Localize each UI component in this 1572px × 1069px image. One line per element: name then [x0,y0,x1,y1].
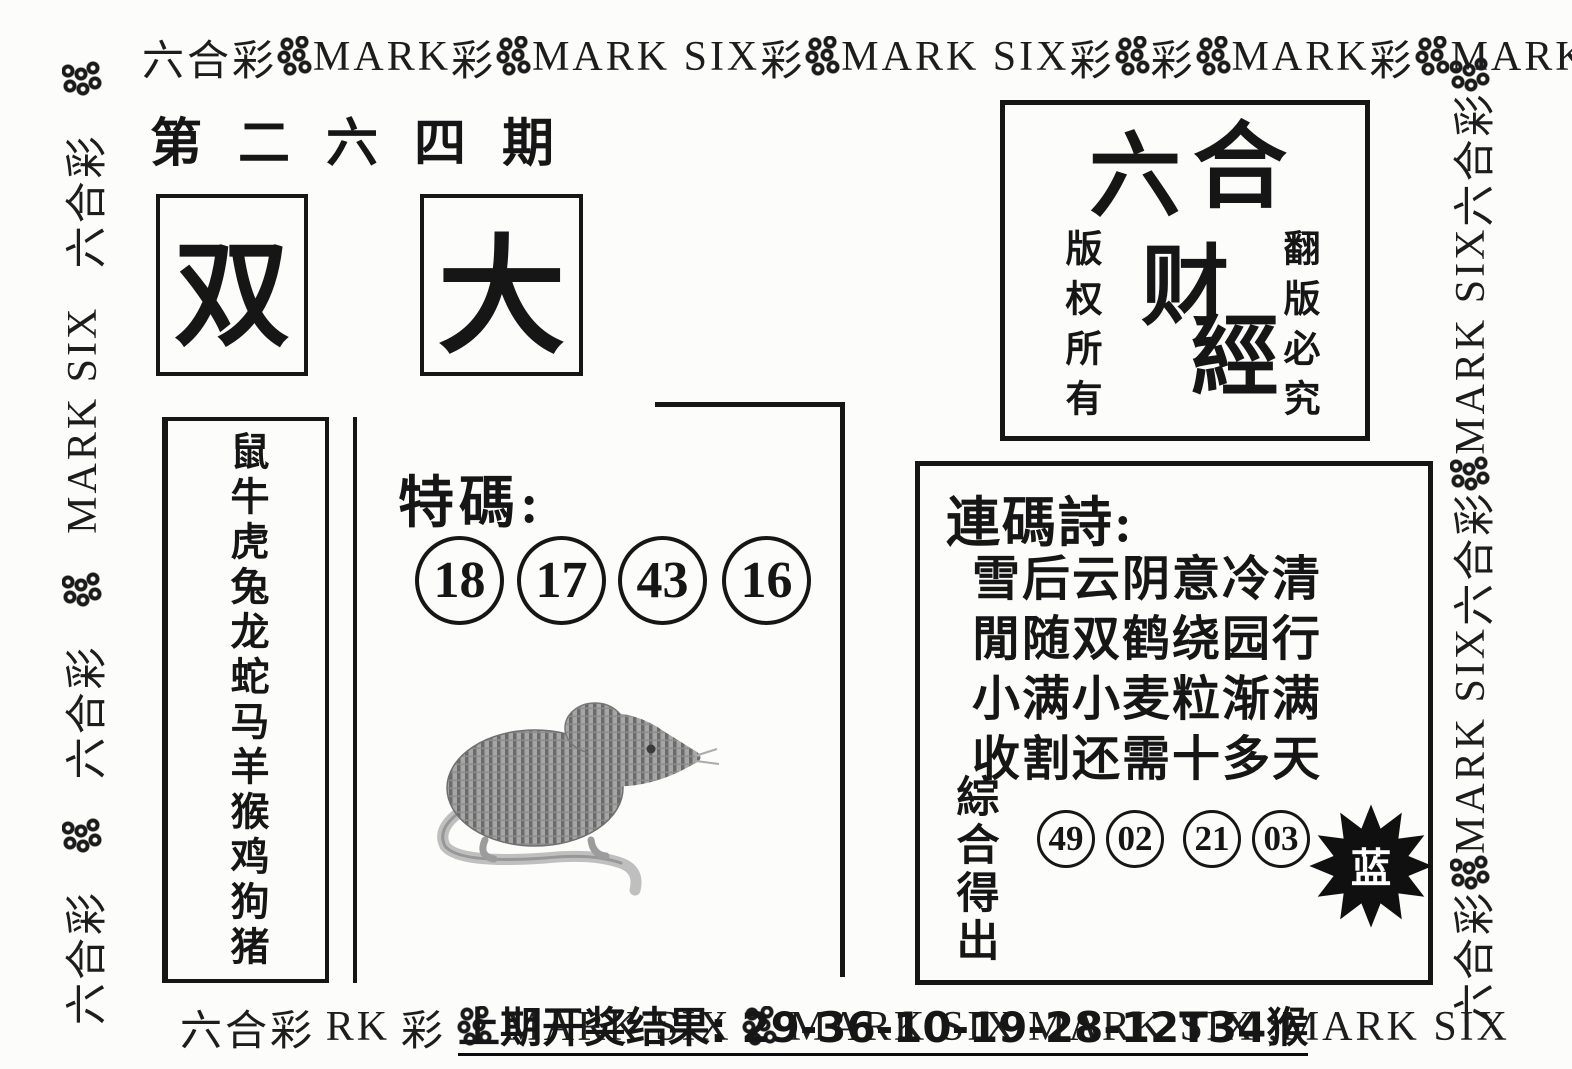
flower-cluster-icon [1450,56,1492,92]
border-text: 彩 [1370,27,1415,88]
issue-title: 第二六四期 [150,101,590,176]
masthead-char: 六 [1089,131,1181,223]
flower-cluster-icon [277,36,313,78]
summary-number: 21 [1195,819,1230,859]
border-text: 彩 [451,27,496,88]
border-text: 六合彩 [1441,491,1502,626]
masthead-char: 合 [1193,121,1287,215]
zodiac-animals: 鼠牛虎兔龙蛇马羊猴鸡狗猪 [227,431,266,979]
panel-border-right [840,402,845,977]
summary-number: 49 [1049,819,1084,859]
color-burst-badge: 蓝 [1305,800,1437,932]
special-number-circle: 16 [722,536,811,625]
masthead-char: 經 [1191,315,1279,403]
flower-cluster-icon [496,36,532,78]
border-text: 六合彩 [53,133,114,268]
border-text: 彩 [760,27,805,88]
border-text: MARK SIX [59,306,107,534]
poem-line: 小满小麦粒渐满 [972,670,1322,730]
border-text: RK [326,1003,390,1051]
top-border: 六合彩 MARK 彩 MARK SIX 彩 MARK SIX 彩 彩 MARK … [142,28,1510,86]
flower-cluster-icon [62,817,104,853]
lottery-tipsheet-page: 六合彩 MARK 彩 MARK SIX 彩 MARK SIX 彩 彩 MARK … [0,0,1572,1069]
summary-number: 03 [1264,819,1299,859]
badge-double-label: 双 [174,201,290,369]
border-text: MARK SIX [532,33,760,81]
summary-number: 02 [1118,819,1153,859]
summary-label: 綜合得出 [952,774,995,966]
color-burst-label: 蓝 [1351,846,1391,891]
border-text: MARK SIX [1447,227,1495,455]
special-code-label: 特碼: [398,458,544,539]
masthead-box: 六 合 财 經 版权所有 翻版必究 [1000,100,1370,441]
special-number-circle: 18 [415,536,504,625]
border-text: 六合彩 [53,890,114,1025]
flower-cluster-icon [1196,36,1232,78]
copyright-notice: 版权所有 [1061,229,1098,429]
badge-big: 大 [420,194,583,376]
last-draw-result: 上期开奖结果: 29-36-10-19-28-12T34猴 [458,1004,1308,1056]
border-text: 彩 [1151,27,1196,88]
summary-number-circle: 21 [1183,810,1241,868]
flower-cluster-icon [1115,36,1151,78]
no-reprint-notice: 翻版必究 [1279,229,1316,429]
flower-cluster-icon [1450,854,1492,890]
border-text: MARK [1232,33,1370,81]
badge-double: 双 [156,194,308,376]
special-number-circle: 17 [517,536,606,625]
rat-illustration [425,688,720,906]
border-text: MARK SIX [841,33,1069,81]
border-text: 彩 [1069,27,1114,88]
summary-number-circle: 49 [1037,810,1095,868]
flower-cluster-icon [62,571,104,607]
poem-lines: 雪后云阴意冷清 閒随双鹤绕园行 小满小麦粒渐满 收割还需十多天 [972,550,1322,790]
border-text: 六合彩 [53,644,114,779]
poem-line: 收割还需十多天 [972,730,1322,790]
vertical-divider [353,417,357,983]
flower-cluster-icon [62,60,104,96]
border-text: 六合彩 [180,997,315,1058]
left-border: 六合彩 六合彩 MARK SIX 六合彩 [54,60,112,1025]
zodiac-list: 鼠牛虎兔龙蛇马羊猴鸡狗猪 [162,417,329,983]
special-number: 18 [434,551,486,610]
summary-number-circle: 03 [1252,810,1310,868]
poem-line: 閒随双鹤绕园行 [972,610,1322,670]
special-number-circle: 43 [618,536,707,625]
flower-cluster-icon [805,36,841,78]
border-text: 彩 [401,997,446,1058]
right-border: 六合彩 MARK SIX 六合彩 MARK SIX 六合彩 [1442,60,1500,1025]
panel-border-top [655,402,845,407]
border-text: 六合彩 [1441,92,1502,227]
summary-number-circle: 02 [1106,810,1164,868]
poem-line: 雪后云阴意冷清 [972,550,1322,610]
border-text: MARK SIX [1447,626,1495,854]
poem-label: 連碼詩: [946,478,1134,557]
special-number: 17 [536,551,588,610]
flower-cluster-icon [1450,455,1492,491]
border-text: 六合彩 [142,27,277,88]
badge-big-label: 大 [437,193,565,378]
special-number: 43 [637,551,689,610]
special-number: 16 [741,551,793,610]
border-text: MARK [313,33,451,81]
